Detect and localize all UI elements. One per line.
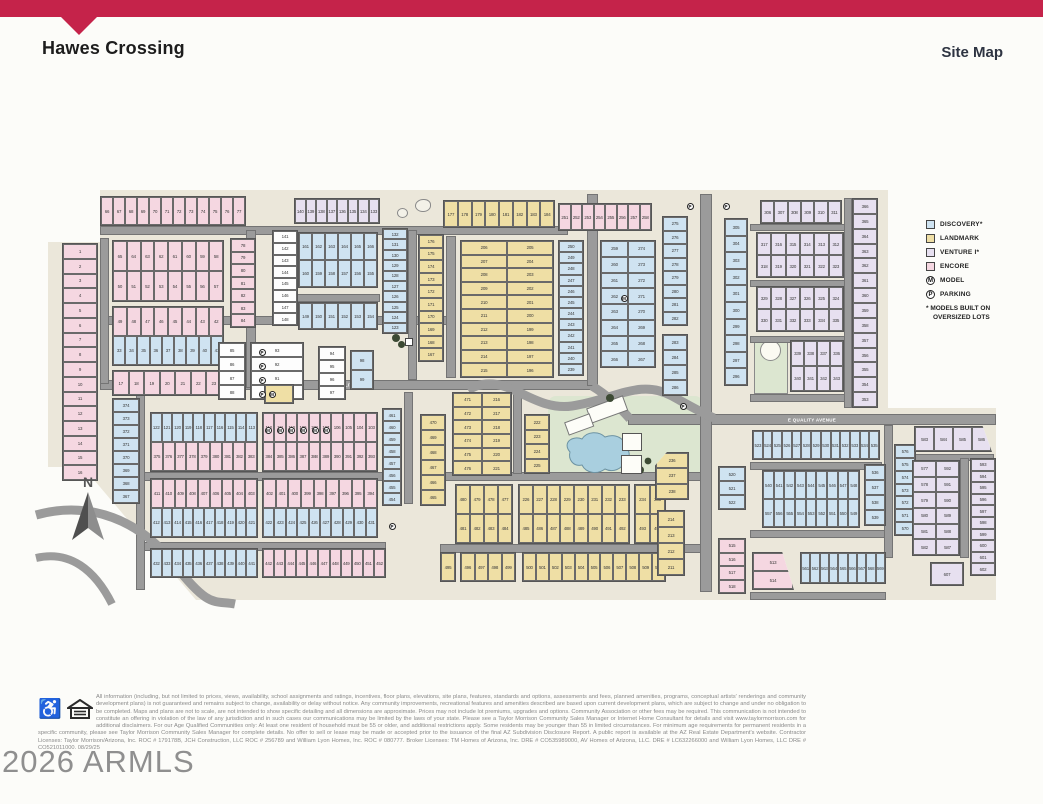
lot: 103 bbox=[366, 413, 377, 442]
lot: 68 bbox=[125, 197, 137, 225]
lot: 380 bbox=[210, 442, 222, 471]
lot: 82 bbox=[231, 289, 255, 302]
lot: 140 bbox=[295, 199, 306, 223]
lot: 602 bbox=[971, 563, 995, 575]
lot: 44 bbox=[182, 307, 196, 336]
lot: 407 bbox=[198, 479, 210, 508]
lot: 214 bbox=[461, 350, 507, 364]
lot: 442 bbox=[263, 549, 274, 577]
lot: 75 bbox=[209, 197, 221, 225]
lot: 181 bbox=[499, 201, 513, 227]
lot: 146 bbox=[273, 290, 297, 302]
lot: 331 bbox=[771, 309, 785, 331]
lot: 320 bbox=[786, 255, 800, 277]
lot: 434 bbox=[172, 549, 183, 577]
lot: 147 bbox=[273, 302, 297, 314]
lot: 356 bbox=[853, 348, 877, 363]
lot: 412 bbox=[151, 508, 162, 537]
lot: 445 bbox=[296, 549, 307, 577]
lot: 74 bbox=[197, 197, 209, 225]
street bbox=[960, 458, 969, 558]
southwest-curved-road-2 bbox=[36, 556, 112, 604]
lot: 384 bbox=[263, 442, 274, 471]
lot: 248 bbox=[559, 263, 583, 274]
lot: 136 bbox=[337, 199, 348, 223]
lot: 298 bbox=[725, 335, 747, 352]
street bbox=[700, 194, 712, 592]
lot: 537 bbox=[865, 480, 885, 495]
lot: 207 bbox=[461, 255, 507, 269]
lot: 543 bbox=[795, 471, 806, 499]
parking-marker: P bbox=[723, 203, 730, 210]
lot: 95 bbox=[319, 360, 345, 373]
lot: 530 bbox=[821, 431, 831, 459]
lot: 65 bbox=[113, 241, 127, 271]
lot: 528 bbox=[801, 431, 811, 459]
lot: 562 bbox=[810, 553, 819, 583]
lot: 564 bbox=[829, 553, 838, 583]
lot: 416 bbox=[193, 508, 204, 537]
lot: 98 bbox=[351, 351, 373, 370]
lot: 179 bbox=[472, 201, 486, 227]
lot-block: 523524525526527528529530531532533534535 bbox=[752, 430, 880, 460]
lot: 57 bbox=[209, 271, 223, 301]
lot: 219 bbox=[482, 434, 511, 448]
lot: 457 bbox=[383, 457, 401, 469]
lot: 316 bbox=[771, 233, 785, 255]
lot: 151 bbox=[325, 303, 338, 329]
lot: 502 bbox=[549, 553, 562, 581]
lot: 335 bbox=[829, 309, 843, 331]
north-label: N bbox=[58, 474, 118, 490]
lot: 476 bbox=[453, 461, 482, 475]
lot: 426 bbox=[309, 508, 320, 537]
lot: 534 bbox=[860, 431, 870, 459]
lot: 88 bbox=[219, 385, 245, 399]
lot: 531 bbox=[831, 431, 841, 459]
lot-block: 149150151152153154 bbox=[298, 302, 378, 330]
lot: 526 bbox=[782, 431, 792, 459]
lot: 105 bbox=[343, 413, 354, 442]
lot: 48 bbox=[127, 307, 141, 336]
lot-block: 536537538539 bbox=[864, 464, 886, 526]
street bbox=[446, 236, 456, 378]
lot: 96 bbox=[319, 373, 345, 386]
lot: 455 bbox=[383, 481, 401, 493]
lot-block: 161162163164165166160159158157156155 bbox=[298, 232, 378, 288]
lot: 19 bbox=[144, 371, 160, 395]
lot: 116 bbox=[215, 413, 226, 442]
lot: 456 bbox=[383, 469, 401, 481]
lot: 495 bbox=[441, 553, 455, 581]
lot: 113 bbox=[246, 413, 257, 442]
lot: 358 bbox=[853, 318, 877, 333]
lot: 417 bbox=[204, 508, 215, 537]
lot: 59 bbox=[196, 241, 210, 271]
lot: 2 bbox=[63, 259, 97, 274]
lot-block: 2262272282292302312322334854864874884894… bbox=[518, 484, 630, 544]
lot: 17 bbox=[113, 371, 129, 395]
lot: 408 bbox=[186, 479, 198, 508]
lot: 281 bbox=[663, 298, 687, 312]
parking-icon: P bbox=[926, 290, 935, 299]
lot: 377 bbox=[175, 442, 187, 471]
lot: 114 bbox=[236, 413, 247, 442]
lot-block: 141142143144145146147148 bbox=[272, 230, 298, 326]
lot: 273 bbox=[628, 257, 655, 273]
parking-marker: P bbox=[389, 523, 396, 530]
lot: 256 bbox=[617, 204, 629, 230]
lot: 8 bbox=[63, 347, 97, 362]
lot: 487 bbox=[547, 514, 561, 543]
lot: 239 bbox=[559, 364, 583, 375]
lot: 341 bbox=[804, 366, 817, 391]
lot: 143 bbox=[273, 255, 297, 267]
lot: 231 bbox=[588, 485, 602, 514]
lot: 121 bbox=[162, 413, 173, 442]
lot: 303 bbox=[725, 252, 747, 269]
lot: 447 bbox=[318, 549, 329, 577]
lot: 424 bbox=[286, 508, 297, 537]
lot: 591 bbox=[936, 477, 959, 493]
lot: 6 bbox=[63, 318, 97, 333]
lot-block: 85868788 bbox=[218, 342, 246, 400]
lot: 76 bbox=[221, 197, 233, 225]
lot: 391 bbox=[343, 442, 354, 471]
lot-block: 515516517518 bbox=[718, 538, 746, 594]
lot: 203 bbox=[507, 268, 553, 282]
lot: 58 bbox=[209, 241, 223, 271]
lot: 483 bbox=[484, 514, 498, 543]
lot: 43 bbox=[196, 307, 210, 336]
lot: 164 bbox=[338, 233, 351, 260]
parking-marker: P bbox=[680, 403, 687, 410]
lot: 374 bbox=[113, 399, 139, 412]
lot: 73 bbox=[185, 197, 197, 225]
lot: 472 bbox=[453, 407, 482, 421]
lot: 507 bbox=[613, 553, 626, 581]
lot: 338 bbox=[804, 341, 817, 366]
parking-marker: P bbox=[259, 377, 266, 384]
lot: 330 bbox=[757, 309, 771, 331]
lot: 491 bbox=[602, 514, 616, 543]
lot: 259 bbox=[601, 241, 628, 257]
lot: 435 bbox=[183, 549, 194, 577]
lot: 257 bbox=[628, 204, 640, 230]
lot: 419 bbox=[225, 508, 236, 537]
street bbox=[100, 238, 109, 384]
lot: 54 bbox=[168, 271, 182, 301]
legend-swatch bbox=[926, 248, 935, 257]
lot: 134 bbox=[358, 199, 369, 223]
lot-block: 4948474645444342333435363738394041 bbox=[112, 306, 224, 366]
lot: 488 bbox=[560, 514, 574, 543]
lot: 211 bbox=[461, 309, 507, 323]
lot: 342 bbox=[817, 366, 830, 391]
lot: 329 bbox=[757, 287, 771, 309]
lot: 50 bbox=[113, 271, 127, 301]
lot: 334 bbox=[814, 309, 828, 331]
lot: 355 bbox=[853, 362, 877, 377]
lot: 516 bbox=[719, 553, 745, 567]
lot: 496 bbox=[461, 553, 475, 581]
lot: 40 bbox=[199, 336, 211, 365]
lot: 196 bbox=[507, 363, 553, 377]
lot: 425 bbox=[297, 508, 308, 537]
lot: 489 bbox=[574, 514, 588, 543]
lot: 503 bbox=[562, 553, 575, 581]
amenity-building-square-2 bbox=[621, 455, 642, 474]
lot-block: 480479478477481482483484 bbox=[455, 484, 513, 544]
street bbox=[408, 230, 417, 380]
lot: 118 bbox=[193, 413, 204, 442]
lot: 423 bbox=[274, 508, 285, 537]
lot: 450 bbox=[352, 549, 363, 577]
lot: 542 bbox=[784, 471, 795, 499]
lot: 158 bbox=[325, 260, 338, 287]
lot: 409 bbox=[175, 479, 187, 508]
lot: 410 bbox=[163, 479, 175, 508]
legend-swatch bbox=[926, 262, 935, 271]
lot: 284 bbox=[663, 350, 687, 365]
lot: 533 bbox=[850, 431, 860, 459]
lot: 159 bbox=[312, 260, 325, 287]
lot: 490 bbox=[588, 514, 602, 543]
lot: 66 bbox=[101, 197, 113, 225]
lot: 508 bbox=[626, 553, 639, 581]
legend-note: * MODELS BUILT ON OVERSIZED LOTS bbox=[926, 304, 990, 322]
lot: 389 bbox=[320, 442, 331, 471]
lot-block: 222223224225 bbox=[524, 414, 550, 474]
lot: 396 bbox=[339, 479, 352, 508]
parking-marker: P bbox=[687, 203, 694, 210]
site-map-page: Hawes Crossing Site Map bbox=[0, 0, 1043, 804]
lot: 13 bbox=[63, 421, 97, 436]
lot: 451 bbox=[363, 549, 374, 577]
lot: 517 bbox=[719, 566, 745, 580]
lot: 480 bbox=[456, 485, 470, 514]
model-icon: M bbox=[926, 276, 935, 285]
lot: 315 bbox=[786, 233, 800, 255]
lot: 364 bbox=[853, 229, 877, 244]
lot: 204 bbox=[507, 255, 553, 269]
lot-block: 250249248247246245244243242241240239 bbox=[558, 240, 584, 376]
lot: 477 bbox=[498, 485, 512, 514]
lot: 540 bbox=[763, 471, 774, 499]
lot: 318 bbox=[757, 255, 771, 277]
lot: 551 bbox=[827, 499, 838, 527]
lot: 283 bbox=[663, 335, 687, 350]
lot: 272 bbox=[628, 273, 655, 289]
lot: 285 bbox=[663, 365, 687, 380]
lot: 20 bbox=[160, 371, 176, 395]
lot-block: 305304303302301300299298297296 bbox=[724, 218, 748, 386]
parking-marker: P bbox=[259, 391, 266, 398]
lot: 569 bbox=[876, 553, 885, 583]
lot: 18 bbox=[129, 371, 145, 395]
lot: 122 bbox=[151, 413, 162, 442]
lot: 579 bbox=[913, 492, 936, 508]
lot-block: 561562563564565566567568569 bbox=[800, 552, 886, 584]
lot: 437 bbox=[204, 549, 215, 577]
lot: 218 bbox=[482, 420, 511, 434]
lot: 520 bbox=[719, 467, 745, 481]
lot: 61 bbox=[168, 241, 182, 271]
lot: 403 bbox=[245, 479, 257, 508]
lot: 52 bbox=[141, 271, 155, 301]
lot: 169 bbox=[419, 323, 443, 336]
lot: 385 bbox=[274, 442, 285, 471]
lot-block: 94959697 bbox=[318, 346, 346, 400]
lot: 402 bbox=[263, 479, 276, 508]
lot: 230 bbox=[574, 485, 588, 514]
lot: 524 bbox=[763, 431, 773, 459]
lot: 475 bbox=[453, 448, 482, 462]
parking-marker: P bbox=[259, 363, 266, 370]
lot: 549 bbox=[848, 499, 859, 527]
lot: 505 bbox=[588, 553, 601, 581]
lot: 468 bbox=[421, 445, 445, 460]
lot: 174 bbox=[419, 260, 443, 273]
lot: 86 bbox=[219, 357, 245, 371]
lot: 83 bbox=[231, 302, 255, 315]
lot: 581 bbox=[913, 524, 936, 540]
lot: 479 bbox=[470, 485, 484, 514]
lot: 245 bbox=[559, 297, 583, 308]
lot: 127 bbox=[383, 281, 407, 291]
lot: 1 bbox=[63, 244, 97, 259]
lot: 280 bbox=[663, 285, 687, 299]
lot: 263 bbox=[601, 304, 628, 320]
lot: 215 bbox=[461, 363, 507, 377]
lot: 474 bbox=[453, 434, 482, 448]
lot: 246 bbox=[559, 286, 583, 297]
lot: 175 bbox=[419, 248, 443, 261]
park-circle bbox=[760, 340, 781, 361]
lot: 120 bbox=[172, 413, 183, 442]
lot-block: 214213212211 bbox=[657, 510, 685, 576]
lot: 372 bbox=[113, 425, 139, 438]
lot: 271 bbox=[628, 288, 655, 304]
lot: 11 bbox=[63, 392, 97, 407]
lot: 84 bbox=[231, 314, 255, 327]
lot: 548 bbox=[848, 471, 859, 499]
lot: 238 bbox=[656, 484, 688, 499]
lot: 308 bbox=[788, 201, 801, 223]
lot: 598 bbox=[971, 517, 995, 529]
lot: 70 bbox=[149, 197, 161, 225]
lot: 545 bbox=[816, 471, 827, 499]
lot: 504 bbox=[575, 553, 588, 581]
street bbox=[844, 198, 852, 408]
lot: 332 bbox=[786, 309, 800, 331]
lot: 399 bbox=[301, 479, 314, 508]
lot: 279 bbox=[663, 271, 687, 285]
lot: 386 bbox=[286, 442, 297, 471]
lot: 168 bbox=[419, 336, 443, 349]
lot: 241 bbox=[559, 342, 583, 353]
lot: 362 bbox=[853, 258, 877, 273]
lot: 172 bbox=[419, 285, 443, 298]
lot: 10 bbox=[63, 377, 97, 392]
lot: 592 bbox=[936, 461, 959, 477]
lot: 323 bbox=[829, 255, 843, 277]
lot: 201 bbox=[507, 295, 553, 309]
lot-block: 2062072082092102112122132142152052042032… bbox=[460, 240, 554, 378]
lot: 354 bbox=[853, 377, 877, 392]
lot: 117 bbox=[204, 413, 215, 442]
site-map: E QUALITY AVEE QUALITY AVENUE12345678910… bbox=[0, 0, 1043, 804]
lot: 599 bbox=[971, 529, 995, 541]
legend-label: LANDMARK bbox=[940, 235, 979, 242]
legend-item: ENCORE bbox=[926, 262, 990, 271]
lot: 449 bbox=[341, 549, 352, 577]
lot: 448 bbox=[330, 549, 341, 577]
lot: 584 bbox=[934, 427, 953, 451]
legend-item: PPARKING bbox=[926, 290, 990, 299]
lot: 63 bbox=[141, 241, 155, 271]
lot-block: 666768697071727374757677 bbox=[100, 196, 246, 226]
lot: 264 bbox=[601, 320, 628, 336]
lot-block: 593594595596597598599600601602 bbox=[970, 458, 996, 576]
lot: 307 bbox=[774, 201, 787, 223]
lot: 33 bbox=[113, 336, 125, 365]
model-marker: M bbox=[323, 427, 330, 434]
lot: 130 bbox=[383, 250, 407, 260]
lot-block: 4114104094084074064054044034124134144154… bbox=[150, 478, 258, 538]
model-marker: M bbox=[277, 427, 284, 434]
lot: 94 bbox=[319, 347, 345, 360]
lot: 183 bbox=[527, 201, 541, 227]
lot: 305 bbox=[725, 219, 747, 236]
legend-swatch bbox=[926, 234, 935, 243]
lot: 160 bbox=[299, 260, 312, 287]
lot: 224 bbox=[525, 444, 549, 459]
lot: 227 bbox=[533, 485, 547, 514]
lot: 253 bbox=[582, 204, 594, 230]
street bbox=[750, 530, 886, 538]
lot: 481 bbox=[456, 514, 470, 543]
lot: 430 bbox=[354, 508, 365, 537]
lot: 327 bbox=[786, 287, 800, 309]
lot: 406 bbox=[210, 479, 222, 508]
lot: 486 bbox=[533, 514, 547, 543]
lot: 439 bbox=[225, 549, 236, 577]
lot: 473 bbox=[453, 420, 482, 434]
lot: 243 bbox=[559, 319, 583, 330]
lot: 296 bbox=[725, 368, 747, 385]
lot: 205 bbox=[507, 241, 553, 255]
lot: 500 bbox=[523, 553, 536, 581]
lot: 563 bbox=[820, 553, 829, 583]
lot: 554 bbox=[795, 499, 806, 527]
lot: 211 bbox=[658, 559, 684, 575]
lot: 390 bbox=[331, 442, 342, 471]
parking-marker: P bbox=[259, 349, 266, 356]
lot: 55 bbox=[182, 271, 196, 301]
map-legend: DISCOVERY*LANDMARKVENTURE I*ENCOREMMODEL… bbox=[926, 220, 990, 322]
lot: 5 bbox=[63, 303, 97, 318]
legend-item: MMODEL bbox=[926, 276, 990, 285]
lot: 165 bbox=[351, 233, 364, 260]
lot: 221 bbox=[482, 461, 511, 475]
lot: 324 bbox=[829, 287, 843, 309]
legend-label: DISCOVERY* bbox=[940, 221, 983, 228]
lot: 21 bbox=[175, 371, 191, 395]
lot: 544 bbox=[806, 471, 817, 499]
lot: 275 bbox=[663, 217, 687, 231]
lot: 395 bbox=[352, 479, 365, 508]
